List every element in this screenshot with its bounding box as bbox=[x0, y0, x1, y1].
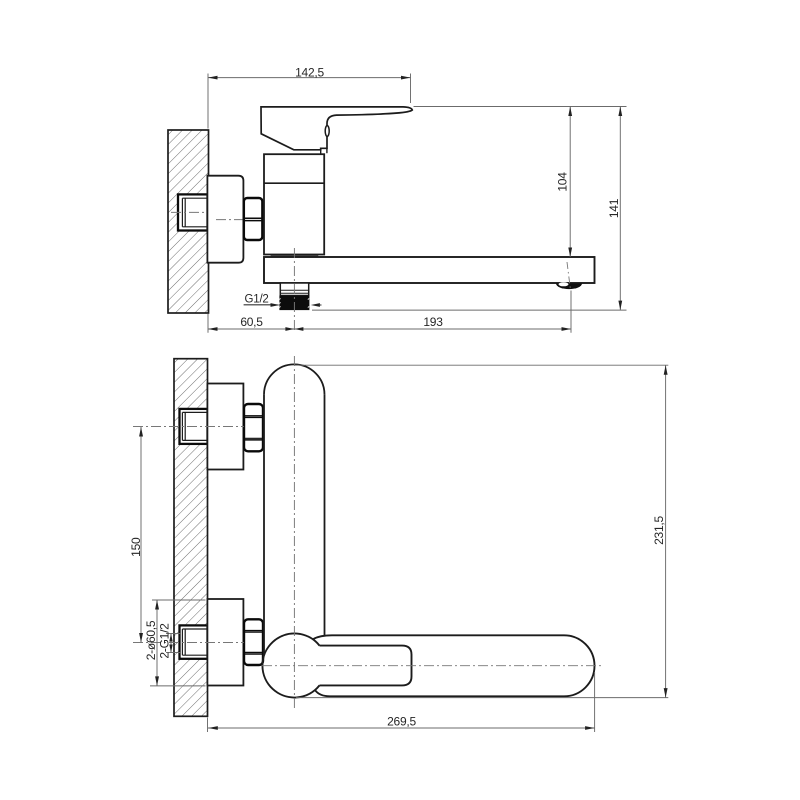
svg-text:142,5: 142,5 bbox=[295, 65, 324, 79]
svg-text:2-ø60,5: 2-ø60,5 bbox=[144, 620, 158, 660]
svg-text:2-G1/2: 2-G1/2 bbox=[158, 623, 172, 659]
svg-text:60,5: 60,5 bbox=[240, 315, 263, 329]
svg-text:269,5: 269,5 bbox=[387, 714, 416, 728]
svg-text:104: 104 bbox=[556, 172, 570, 192]
svg-text:193: 193 bbox=[423, 315, 443, 329]
svg-text:141: 141 bbox=[607, 198, 621, 218]
svg-text:150: 150 bbox=[129, 537, 143, 557]
svg-text:G1/2: G1/2 bbox=[245, 294, 269, 306]
svg-text:231,5: 231,5 bbox=[652, 516, 666, 545]
